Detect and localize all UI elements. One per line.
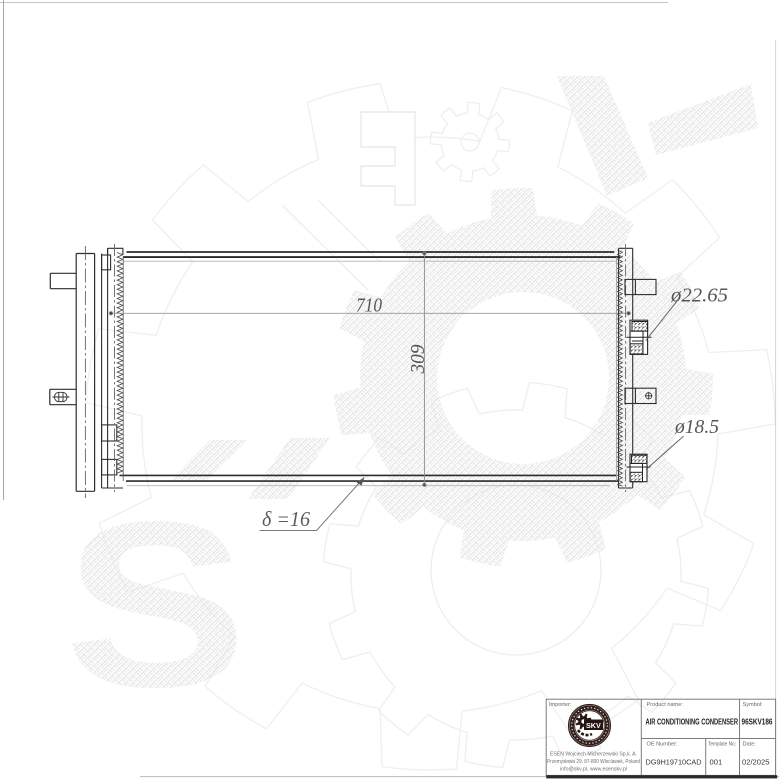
svg-text:Product name:: Product name: [647, 702, 684, 708]
svg-text:Importer:: Importer: [549, 702, 572, 708]
svg-text:309: 309 [407, 345, 429, 375]
svg-text:DG9H19710CAD: DG9H19710CAD [646, 758, 702, 767]
svg-text:ESEN Wojciech Micherzewski Sp.: ESEN Wojciech Micherzewski Sp.k. A. [550, 752, 637, 758]
svg-text:ø22.65: ø22.65 [670, 285, 728, 307]
svg-text:S: S [64, 473, 247, 737]
svg-text:Przemyslowa 29, 87-800 Wloclaw: Przemyslowa 29, 87-800 Wloclawek, Poland [547, 759, 640, 765]
svg-text:info@skv.pl, www.esenskv.pl: info@skv.pl, www.esenskv.pl [560, 767, 627, 773]
svg-text:ø18.5: ø18.5 [674, 416, 719, 438]
svg-text:OE Number:: OE Number: [647, 742, 679, 748]
svg-text:001: 001 [710, 758, 723, 767]
svg-text:AIR CONDITIONING CONDENSER: AIR CONDITIONING CONDENSER [646, 717, 739, 727]
svg-text:Date:: Date: [743, 742, 757, 748]
svg-text:Symbol:: Symbol: [743, 702, 764, 708]
svg-text:SKV: SKV [586, 721, 601, 730]
svg-text:02/2025: 02/2025 [742, 758, 769, 767]
svg-text:δ =16: δ =16 [262, 507, 310, 531]
svg-text:96SKV186: 96SKV186 [742, 717, 773, 727]
svg-text:Template No:: Template No: [708, 742, 736, 748]
svg-text:710: 710 [356, 295, 382, 317]
